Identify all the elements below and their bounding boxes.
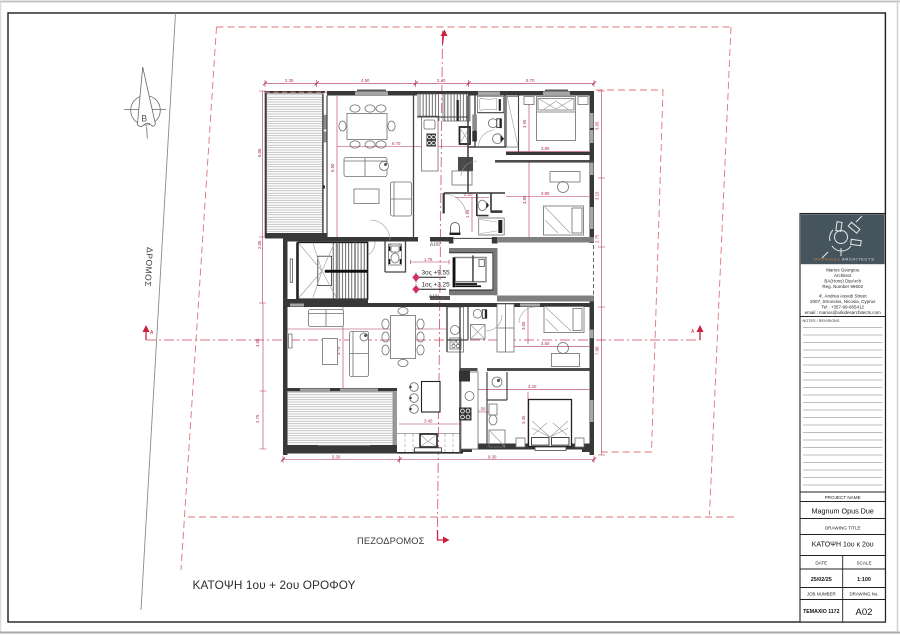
svg-text:PROJECT NAME: PROJECT NAME — [825, 495, 861, 500]
svg-text:DRAWING No.: DRAWING No. — [849, 592, 878, 597]
svg-text:2.35: 2.35 — [285, 78, 294, 83]
svg-text:BA(Hons) DipArch: BA(Hons) DipArch — [824, 279, 861, 284]
svg-text:Magnum Opus Due: Magnum Opus Due — [812, 507, 874, 516]
svg-text:MARKIDES: MARKIDES — [814, 257, 841, 262]
svg-text:JOB NUMBER: JOB NUMBER — [807, 592, 836, 597]
svg-text:3.05: 3.05 — [521, 321, 526, 330]
svg-text:3.80: 3.80 — [541, 146, 550, 151]
svg-text:Tel : +357-99-665412: Tel : +357-99-665412 — [821, 305, 864, 310]
svg-text:Reg. Number 99602: Reg. Number 99602 — [822, 284, 863, 289]
svg-text:ΠΕΖΟΔΡΟΜΟΣ: ΠΕΖΟΔΡΟΜΟΣ — [357, 536, 425, 546]
svg-text:2.75: 2.75 — [255, 414, 260, 423]
svg-text:5.30: 5.30 — [332, 455, 341, 460]
svg-text:ARCHITECTS: ARCHITECTS — [842, 257, 875, 262]
svg-text:1.75: 1.75 — [424, 257, 433, 262]
svg-text:9.30: 9.30 — [488, 455, 497, 460]
svg-text:A02: A02 — [856, 607, 873, 618]
svg-text:3.95: 3.95 — [595, 121, 600, 130]
svg-text:4.50: 4.50 — [361, 78, 370, 83]
svg-text:1ος +3.25: 1ος +3.25 — [422, 282, 451, 289]
svg-text:Δ101: Δ101 — [429, 294, 440, 299]
svg-text:DRAWING TITLE: DRAWING TITLE — [825, 526, 861, 531]
svg-text:NOTES / REVISIONS: NOTES / REVISIONS — [803, 319, 840, 323]
svg-text:Δ102: Δ102 — [430, 242, 441, 247]
svg-text:2.05: 2.05 — [257, 240, 262, 249]
svg-text:6.08: 6.08 — [257, 148, 262, 157]
svg-text:DATE: DATE — [815, 561, 827, 566]
svg-text:email : marios@arkidesarchitec: email : marios@arkidesarchitects.com — [805, 310, 881, 315]
svg-text:ΚΑΤΟΨΗ 1ου κ 2ου: ΚΑΤΟΨΗ 1ου κ 2ου — [812, 542, 874, 549]
svg-text:3.50: 3.50 — [541, 341, 550, 346]
svg-text:Marios Georgiou: Marios Georgiou — [826, 268, 860, 273]
svg-text:3.80: 3.80 — [541, 191, 550, 196]
svg-text:3.35: 3.35 — [521, 415, 526, 424]
svg-text:4.05: 4.05 — [255, 338, 260, 347]
svg-text:3.40: 3.40 — [424, 419, 433, 424]
svg-text:5.70: 5.70 — [526, 78, 535, 83]
svg-text:2007, Strovolos, Nicosia, Cypr: 2007, Strovolos, Nicosia, Cyprus — [810, 299, 876, 304]
svg-text:3.15: 3.15 — [595, 191, 600, 200]
svg-text:ΤΕΜΑΧΙΟ 1172: ΤΕΜΑΧΙΟ 1172 — [803, 609, 839, 615]
svg-text:2.40: 2.40 — [437, 78, 446, 83]
svg-text:ΚΑΤΟΨΗ 1ου + 2ου ΟΡΟΦΟΥ: ΚΑΤΟΨΗ 1ου + 2ου ΟΡΟΦΟΥ — [193, 578, 356, 592]
svg-text:4ᵗ, Andrea Assioti Street: 4ᵗ, Andrea Assioti Street — [819, 294, 868, 299]
svg-text:Architect: Architect — [834, 273, 852, 278]
svg-text:ΔΡΟΜΟΣ: ΔΡΟΜΟΣ — [143, 247, 155, 287]
svg-text:B: B — [141, 114, 147, 124]
svg-text:3.20: 3.20 — [528, 384, 537, 389]
svg-text:25/02/25: 25/02/25 — [811, 577, 832, 583]
svg-text:2.75: 2.75 — [595, 234, 600, 243]
svg-text:3.95: 3.95 — [522, 119, 527, 128]
svg-text:3ος +9.55: 3ος +9.55 — [422, 270, 451, 277]
svg-text:SCALE: SCALE — [856, 561, 871, 566]
svg-text:6.50: 6.50 — [330, 163, 335, 172]
svg-text:1:100: 1:100 — [857, 577, 871, 583]
svg-text:7.00: 7.00 — [595, 346, 600, 355]
svg-text:6.70: 6.70 — [392, 141, 401, 146]
